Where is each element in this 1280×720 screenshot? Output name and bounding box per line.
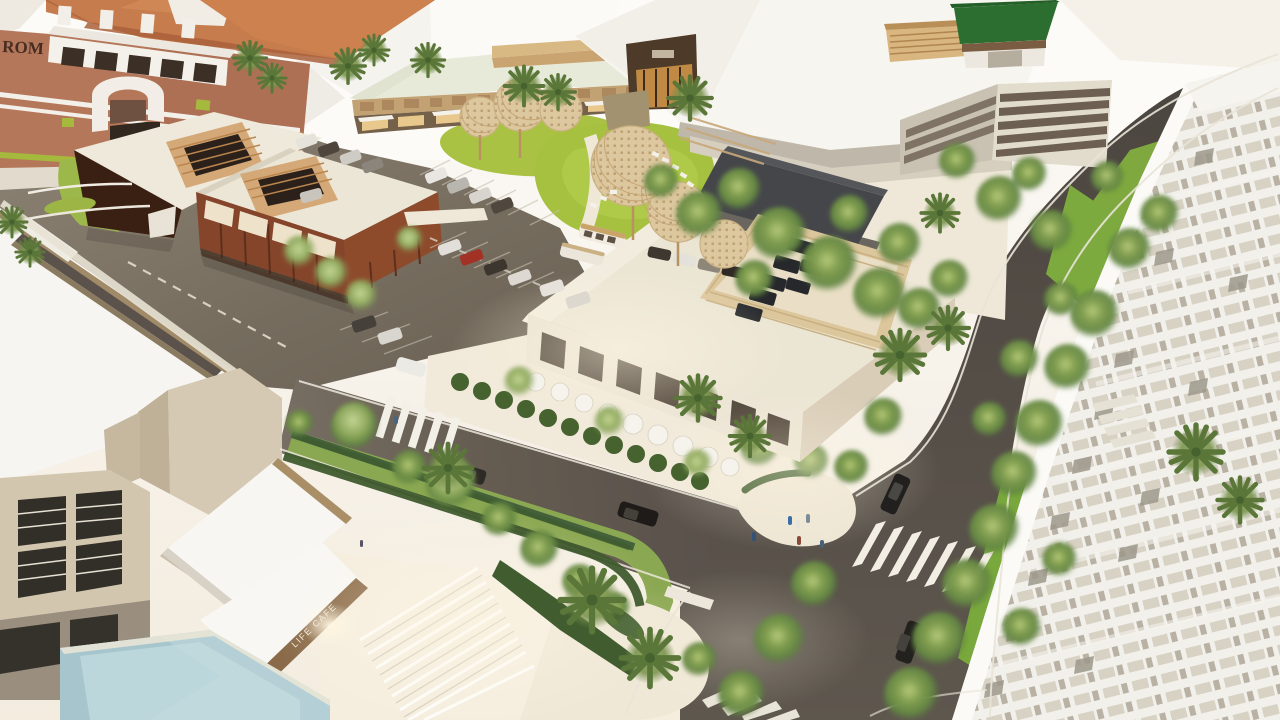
svg-text:ROM: ROM <box>2 37 44 58</box>
